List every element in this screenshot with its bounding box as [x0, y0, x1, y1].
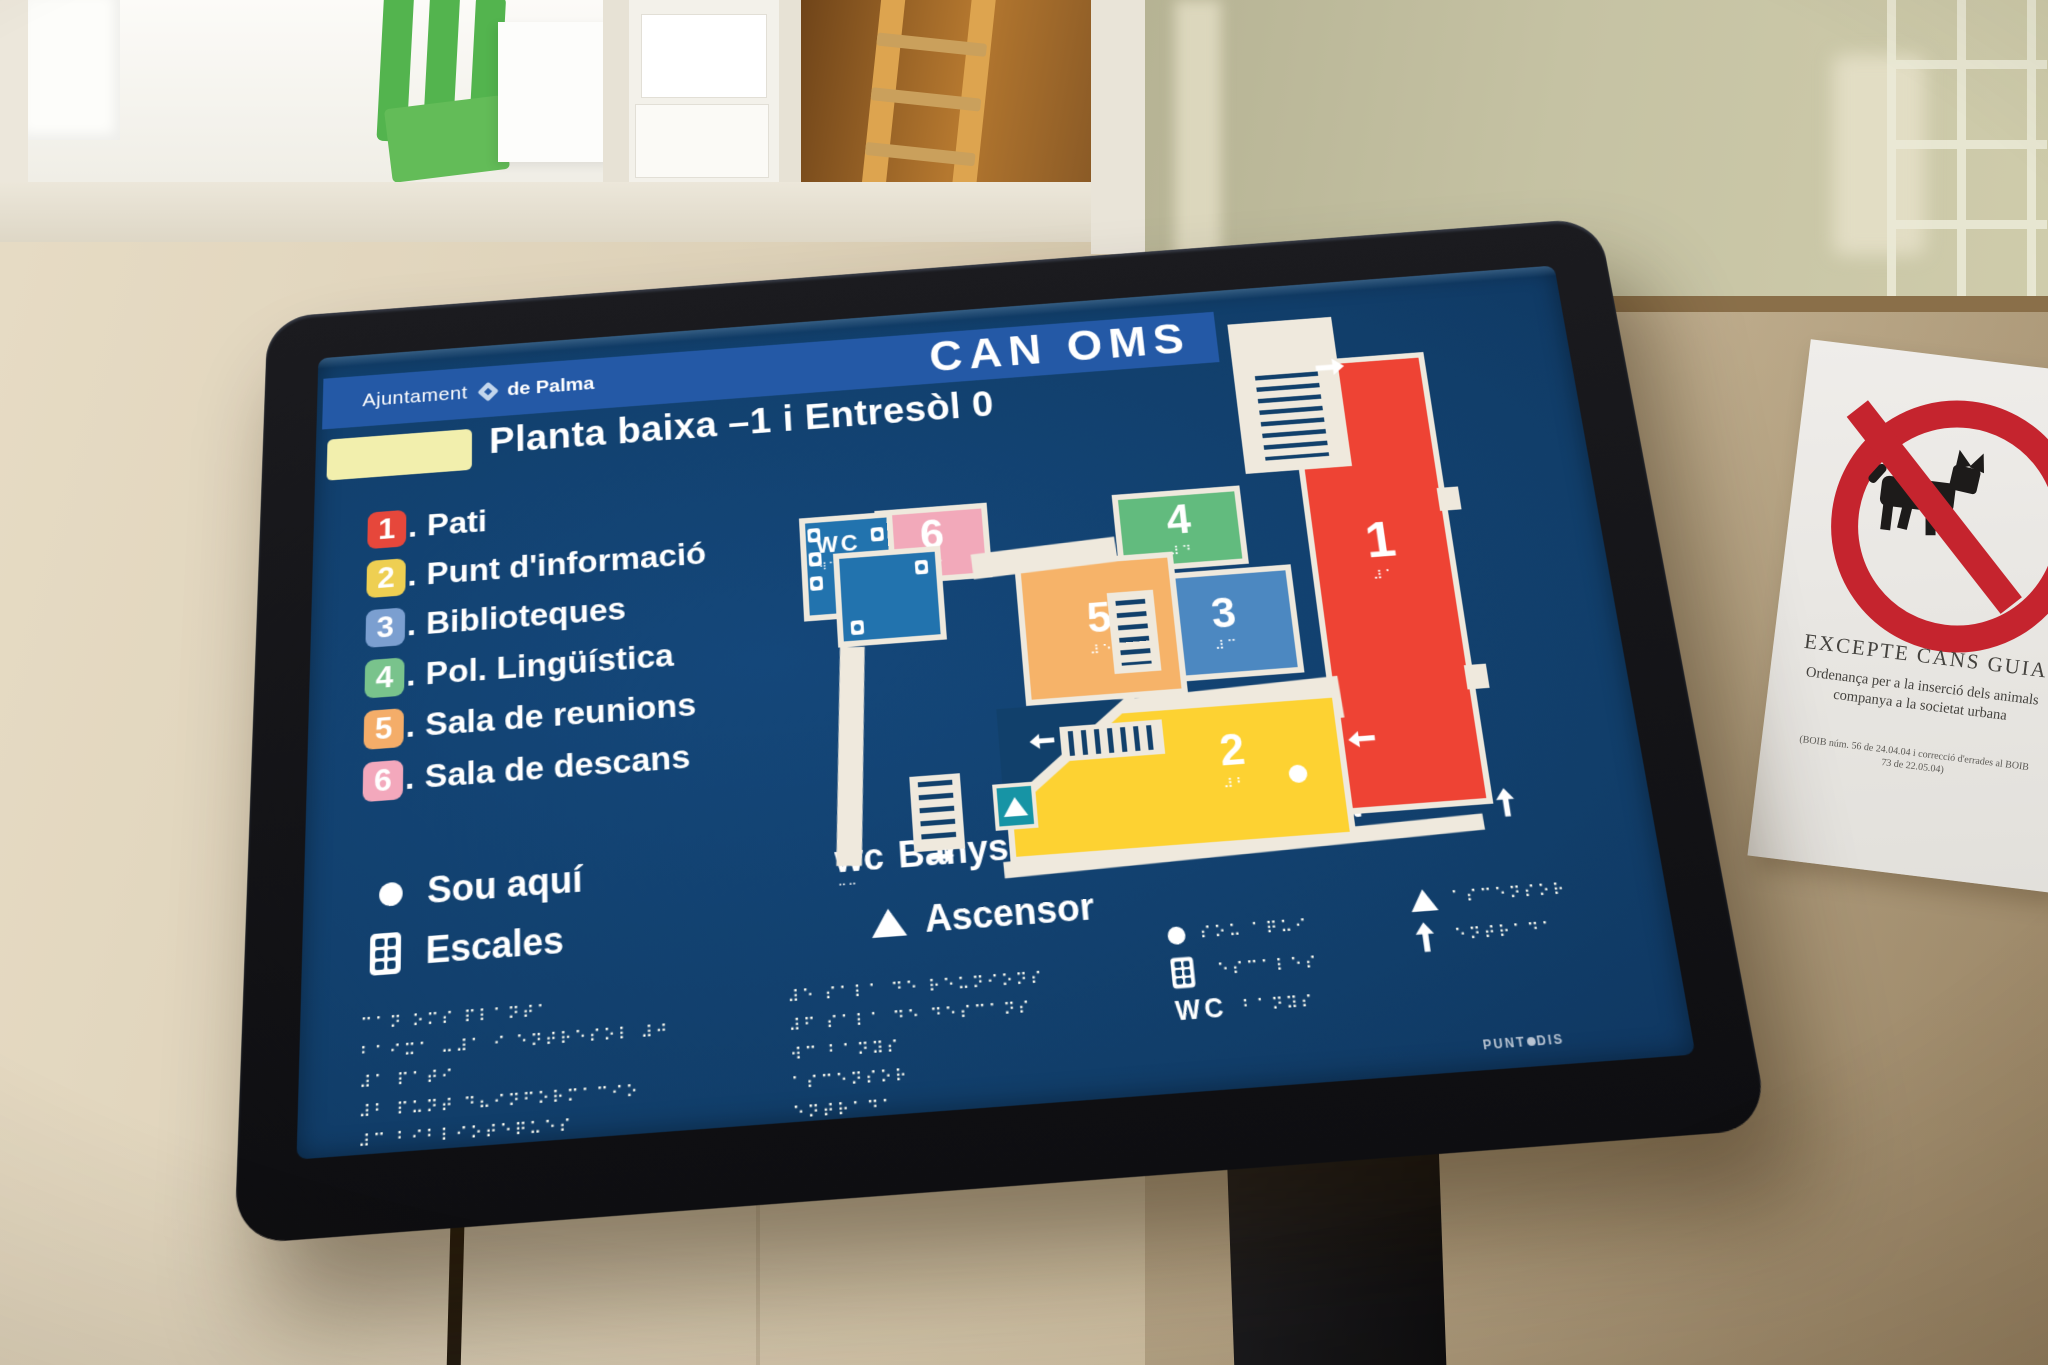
you-are-here-legend: Sou aquí	[379, 858, 583, 916]
window-frame-post	[1091, 0, 1145, 254]
lift-triangle-icon	[870, 907, 907, 938]
legend-separator: .	[405, 707, 415, 746]
stairs-middle-shaft	[1106, 590, 1161, 674]
puntodis-logo: PUNTDIS	[1482, 1031, 1565, 1052]
wall-notch	[1437, 487, 1461, 511]
white-box	[635, 104, 769, 178]
lift-box	[992, 782, 1039, 831]
braille-text: ⠑⠝⠞⠗⠁⠙⠁	[1454, 920, 1558, 943]
logo-dot-icon	[1526, 1037, 1536, 1046]
room-braille-dots: ⠼⠙	[1169, 543, 1195, 559]
sign-footnote: (BOIB núm. 56 de 24.04.04 i correcció d'…	[1760, 728, 2048, 791]
room-number: 4	[1164, 499, 1192, 541]
legend-color-swatch: 3	[365, 607, 405, 648]
reflection-bar	[1887, 60, 2047, 69]
legend-separator: .	[408, 509, 418, 545]
stairs-top-right	[1228, 317, 1352, 474]
reflection-bar	[1957, 0, 1966, 300]
white-box	[641, 14, 767, 98]
window-band	[0, 0, 1145, 242]
reflection-bar	[1887, 140, 2047, 149]
dog-leg	[1880, 501, 1893, 530]
white-box	[498, 22, 603, 162]
direction-arrow-icon	[1029, 732, 1056, 750]
stair-treads	[1115, 599, 1151, 666]
window-mullion	[603, 0, 629, 192]
legend-number: 5	[375, 710, 393, 747]
white-box	[28, 0, 120, 140]
legend-number: 4	[375, 659, 393, 696]
city-crest-icon	[477, 379, 500, 403]
toilet-icon	[810, 576, 823, 591]
entry-arrow-icon	[1347, 729, 1377, 749]
wall-notch	[1464, 664, 1489, 690]
room-label-group: 2 ⠼⠃	[1217, 728, 1250, 792]
stairs-left	[909, 773, 965, 852]
braille-text: ⠃⠁⠝⠽⠎	[1241, 993, 1316, 1015]
legend-separator: .	[407, 607, 417, 644]
stairs-grid-icon	[1170, 957, 1196, 989]
window-pane-left	[28, 0, 603, 182]
wooden-ladder	[840, 0, 1052, 194]
brand-name: Ajuntament	[362, 383, 467, 412]
exit-arrow-icon	[1314, 357, 1346, 377]
kiosk-screen: Ajuntament de Palma CAN OMS Planta baixa…	[297, 266, 1696, 1160]
braille-block-middle: ⠼⠑ ⠎⠁⠇⠁ ⠙⠑ ⠗⠑⠥⠝⠊⠕⠝⠎ ⠼⠋ ⠎⠁⠇⠁ ⠙⠑ ⠙⠑⠎⠉⠁⠝⠎ ⠺…	[787, 964, 1056, 1129]
lift-triangle-icon	[1409, 888, 1439, 912]
window-pane-middle	[629, 0, 779, 188]
legend-color-swatch: 6	[363, 759, 404, 801]
legend-separator: .	[405, 759, 415, 798]
braille-text: ⠁⠎⠉⠑⠝⠎⠕⠗	[1450, 881, 1568, 905]
room-5-sala-de-reunions: 5 ⠼⠑	[1014, 551, 1188, 705]
floor-plan-map: 1 ⠼⠁ 4 ⠼⠙ 3 ⠼⠉	[781, 308, 1536, 882]
wc-label: WC	[1174, 992, 1229, 1027]
room-braille-dots: ⠼⠉	[1214, 638, 1241, 654]
braille-symbol-legend-2: ⠁⠎⠉⠑⠝⠎⠕⠗ ⠑⠝⠞⠗⠁⠙⠁	[1407, 870, 1576, 957]
toilet-icon	[871, 527, 884, 542]
entrance-arrow-icon	[1493, 787, 1517, 817]
perimeter-wall	[836, 647, 864, 867]
toilet-icon	[915, 560, 929, 575]
kiosk-bezel: Ajuntament de Palma CAN OMS Planta baixa…	[234, 218, 1770, 1245]
legend-number: 1	[378, 512, 396, 547]
room-braille-dots: ⠼⠁	[1372, 568, 1399, 584]
entrance-arrow-icon	[1413, 922, 1437, 954]
direction-arrow-icon	[930, 847, 955, 865]
toilet-icon	[807, 528, 820, 543]
legend-separator: .	[407, 557, 417, 594]
reflection-bar	[2027, 0, 2036, 300]
wc-room-annex	[833, 546, 947, 648]
reflection-bar	[1887, 0, 1896, 300]
legend-number: 2	[377, 560, 395, 596]
room-braille-dots: ⠼⠃	[1223, 776, 1250, 793]
legend-number: 3	[376, 609, 394, 645]
room-number: 3	[1209, 593, 1238, 636]
stair-treads	[917, 780, 957, 846]
stairs-grid-icon	[370, 932, 402, 976]
green-file-box	[384, 95, 510, 182]
braille-block-left: ⠉⠁⠝ ⠕⠍⠎ ⠏⠇⠁⠝⠞⠁ ⠃⠁⠊⠭⠁ ⠤⠼⠁ ⠊ ⠑⠝⠞⠗⠑⠎⠕⠇ ⠼⠚ ⠼…	[357, 988, 674, 1160]
braille-text: ⠎⠕⠥ ⠁⠟⠥⠊	[1199, 917, 1310, 941]
legend-label: Biblioteques	[426, 591, 627, 643]
lift-triangle-icon	[1002, 796, 1028, 817]
window-opening-dark	[801, 0, 1091, 194]
stairs-legend: Escales	[370, 919, 565, 977]
lift-label: Ascensor	[923, 885, 1096, 941]
reflection-bar	[1887, 220, 2047, 229]
window-mullion	[779, 0, 801, 194]
stair-treads	[1068, 725, 1157, 756]
logo-text: PUNT	[1482, 1034, 1527, 1052]
dog-ear	[1952, 448, 1971, 469]
you-are-here-dot	[1288, 764, 1308, 783]
legend-separator: .	[406, 657, 416, 695]
legend-color-swatch: 5	[364, 708, 404, 750]
you-are-here-dot-icon	[1167, 926, 1186, 945]
window-grid-reflection	[1887, 0, 2047, 300]
floor-highlight-box	[326, 429, 471, 481]
legend-color-swatch: 2	[366, 558, 405, 598]
braille-text: ⠑⠎⠉⠁⠇⠑⠎	[1217, 955, 1321, 978]
braille-symbol-legend: ⠎⠕⠥ ⠁⠟⠥⠊ ⠑⠎⠉⠁⠇⠑⠎ WC ⠃⠁⠝⠽⠎	[1166, 906, 1327, 1031]
legend-label: Pati	[427, 504, 487, 544]
city-brand: Ajuntament de Palma	[362, 372, 594, 412]
photo-scene: EXCEPTE CANS GUIA Ordenança per a la ins…	[0, 0, 2048, 1365]
legend-color-swatch: 4	[364, 657, 404, 698]
legend-color-swatch: 1	[367, 509, 406, 548]
legend-number: 6	[374, 761, 392, 799]
room-legend: 1. Pati 2. Punt d'informació 3. Bibliote…	[362, 481, 714, 808]
toilet-icon	[850, 620, 864, 635]
brand-place: de Palma	[507, 373, 594, 400]
room-number: 1	[1362, 514, 1399, 566]
logo-text: DIS	[1535, 1031, 1565, 1048]
window-sill	[0, 182, 1091, 242]
room-number: 2	[1217, 728, 1247, 773]
lift-legend: Ascensor	[870, 885, 1096, 945]
wc-braille-dots: ⠒⠒	[838, 878, 859, 893]
toilet-icon	[808, 552, 821, 567]
stairs-label: Escales	[425, 919, 564, 973]
stair-treads	[1255, 371, 1329, 460]
you-are-here-label: Sou aquí	[427, 858, 583, 913]
you-are-here-dot-icon	[379, 881, 403, 906]
